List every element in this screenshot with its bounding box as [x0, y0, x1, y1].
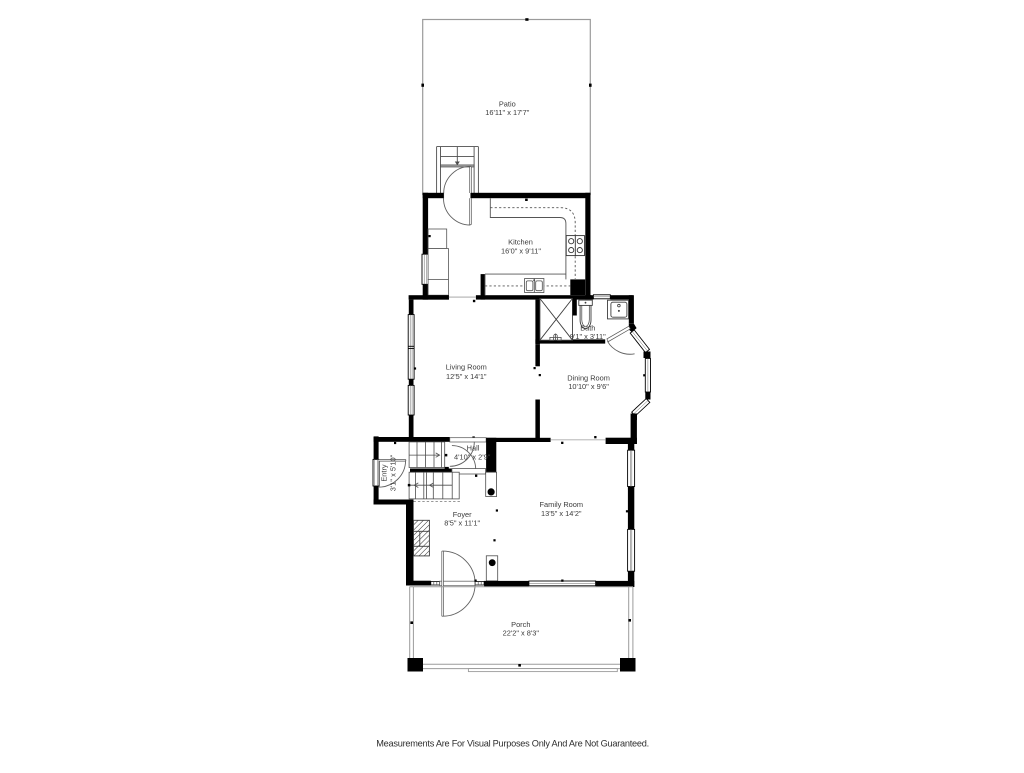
svg-text:Family Room: Family Room: [540, 500, 584, 509]
svg-text:22'2" x 8'3": 22'2" x 8'3": [503, 628, 540, 637]
svg-text:16'11" x 17'7": 16'11" x 17'7": [485, 108, 529, 117]
svg-text:16'0" x 9'11": 16'0" x 9'11": [501, 246, 541, 255]
svg-text:4'10" x 2'9": 4'10" x 2'9": [454, 452, 491, 461]
svg-text:13'5" x 14'2": 13'5" x 14'2": [541, 509, 582, 518]
svg-text:9'1" x 3'11": 9'1" x 3'11": [570, 332, 606, 341]
svg-text:Measurements Are For Visual Pu: Measurements Are For Visual Purposes Onl…: [376, 739, 649, 749]
svg-text:10'10" x 9'6": 10'10" x 9'6": [568, 382, 609, 391]
svg-text:Patio: Patio: [499, 99, 516, 108]
svg-text:12'5" x 14'1": 12'5" x 14'1": [446, 372, 487, 381]
svg-text:8'5" x 11'1": 8'5" x 11'1": [444, 519, 480, 528]
svg-text:Living Room: Living Room: [446, 363, 487, 372]
svg-text:Hall: Hall: [467, 444, 480, 453]
svg-text:3'1" x 5'10": 3'1" x 5'10": [388, 454, 397, 491]
svg-text:Kitchen: Kitchen: [508, 238, 533, 247]
svg-text:Entry: Entry: [380, 464, 389, 482]
